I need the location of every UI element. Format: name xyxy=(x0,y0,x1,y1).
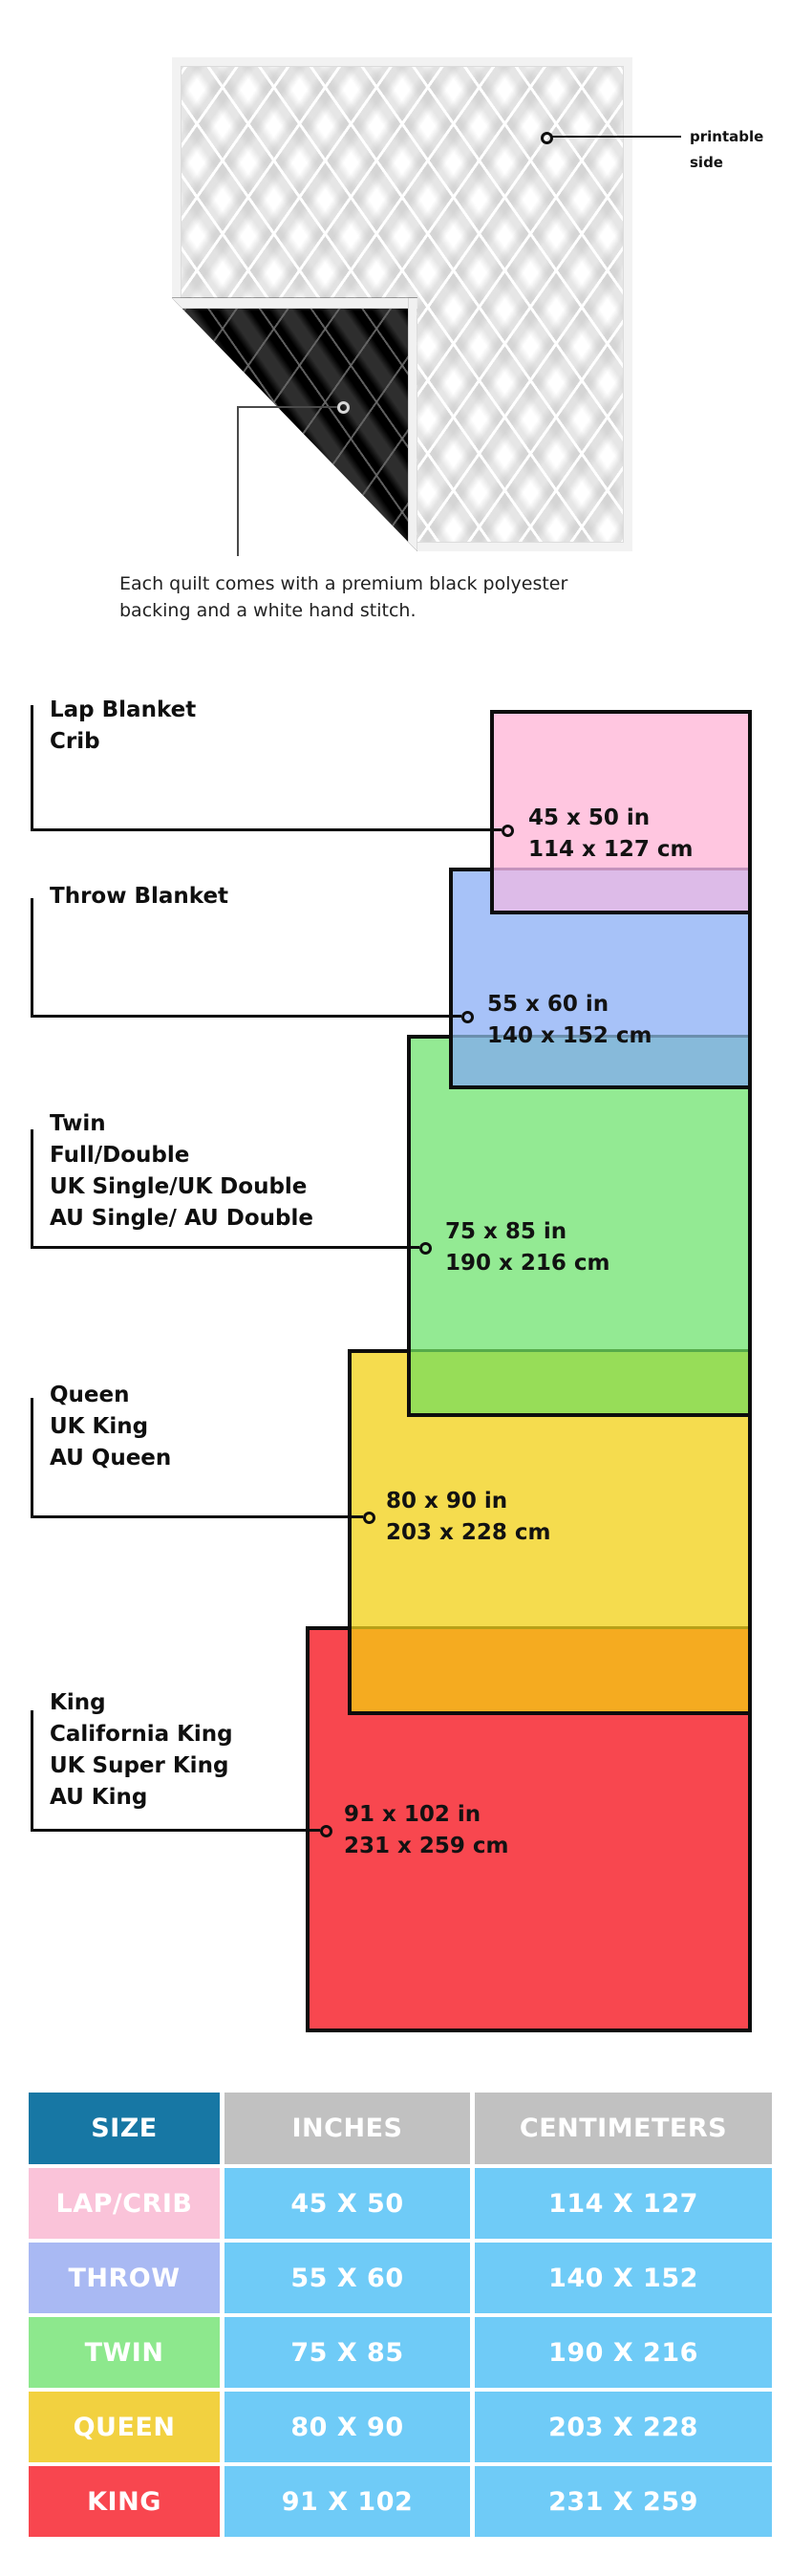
table-row-twin-cm: 190 X 216 xyxy=(475,2317,772,2388)
dim-twin-inches: 75 x 85 in xyxy=(445,1216,609,1248)
dim-throw-inches: 55 x 60 in xyxy=(487,989,652,1020)
overlap-queen-over-king xyxy=(352,1626,748,1711)
table-header-centimeters: CENTIMETERS xyxy=(475,2093,772,2164)
label-twin-line3: UK Single/UK Double xyxy=(50,1171,313,1203)
dim-text-lap: 45 x 50 in 114 x 127 cm xyxy=(528,803,693,866)
label-queen: Queen UK King AU Queen xyxy=(50,1380,171,1474)
bracket-king-vertical xyxy=(31,1710,33,1831)
printable-side-label-line2: side xyxy=(690,150,778,176)
table-row-lap-size: LAP/CRIB xyxy=(29,2168,220,2239)
dim-lap-inches: 45 x 50 in xyxy=(528,803,693,834)
quilt-size-infographic: printable side Each quilt comes with a p… xyxy=(0,0,791,2576)
overlap-twin-over-queen xyxy=(411,1349,748,1413)
table-row-throw-inches: 55 X 60 xyxy=(224,2243,470,2313)
callout-ring-throw xyxy=(461,1011,474,1023)
table-row-king-size: KING xyxy=(29,2466,220,2537)
dim-text-throw: 55 x 60 in 140 x 152 cm xyxy=(487,989,652,1052)
dim-text-twin: 75 x 85 in 190 x 216 cm xyxy=(445,1216,609,1279)
bracket-lap-horizontal xyxy=(31,828,502,831)
label-twin-line1: Twin xyxy=(50,1108,313,1140)
table-row-throw-cm: 140 X 152 xyxy=(475,2243,772,2313)
dim-king-cm: 231 x 259 cm xyxy=(344,1831,508,1862)
callout-ring-king xyxy=(320,1825,332,1837)
table-row-lap-inches: 45 X 50 xyxy=(224,2168,470,2239)
label-queen-line3: AU Queen xyxy=(50,1443,171,1474)
table-row-throw-size: THROW xyxy=(29,2243,220,2313)
label-king-line1: King xyxy=(50,1687,233,1719)
fold-trim-top xyxy=(172,298,417,309)
label-king-line4: AU King xyxy=(50,1782,233,1814)
bracket-lap-vertical xyxy=(31,705,33,831)
dim-lap-cm: 114 x 127 cm xyxy=(528,834,693,866)
callout-ring-queen xyxy=(363,1512,375,1524)
bracket-twin-horizontal xyxy=(31,1246,419,1249)
fold-trim-right xyxy=(408,298,418,551)
label-throw: Throw Blanket xyxy=(50,881,228,912)
dim-king-inches: 91 x 102 in xyxy=(344,1799,508,1831)
label-king-line3: UK Super King xyxy=(50,1750,233,1782)
table-row-king-cm: 231 X 259 xyxy=(475,2466,772,2537)
dim-throw-cm: 140 x 152 cm xyxy=(487,1020,652,1052)
printable-side-leader-line xyxy=(552,136,681,138)
overlap-lap-over-throw xyxy=(494,868,748,911)
dim-queen-cm: 203 x 228 cm xyxy=(386,1517,550,1549)
bracket-twin-vertical xyxy=(31,1129,33,1248)
printable-side-marker-icon xyxy=(541,132,553,144)
label-queen-line2: UK King xyxy=(50,1411,171,1443)
printable-side-label: printable side xyxy=(690,124,778,176)
table-row-twin-inches: 75 X 85 xyxy=(224,2317,470,2388)
backing-caption-line1: Each quilt comes with a premium black po… xyxy=(119,570,731,597)
label-twin: Twin Full/Double UK Single/UK Double AU … xyxy=(50,1108,313,1234)
backing-caption: Each quilt comes with a premium black po… xyxy=(119,570,731,624)
backing-leader-line-vertical xyxy=(237,406,239,556)
label-throw-line1: Throw Blanket xyxy=(50,881,228,912)
table-row-lap-cm: 114 X 127 xyxy=(475,2168,772,2239)
bracket-throw-vertical xyxy=(31,898,33,1017)
table-header-inches: INCHES xyxy=(224,2093,470,2164)
table-row-twin-size: TWIN xyxy=(29,2317,220,2388)
label-king: King California King UK Super King AU Ki… xyxy=(50,1687,233,1814)
dim-queen-inches: 80 x 90 in xyxy=(386,1486,550,1517)
label-lap-line1: Lap Blanket xyxy=(50,695,196,726)
callout-ring-lap xyxy=(502,825,514,837)
table-row-queen-inches: 80 X 90 xyxy=(224,2392,470,2462)
label-twin-line2: Full/Double xyxy=(50,1140,313,1171)
callout-ring-twin xyxy=(419,1242,432,1255)
backing-leader-line-horizontal xyxy=(237,406,337,408)
table-row-king-inches: 91 X 102 xyxy=(224,2466,470,2537)
label-lap-line2: Crib xyxy=(50,726,196,758)
bracket-throw-horizontal xyxy=(31,1015,461,1018)
backing-marker-icon xyxy=(337,401,350,414)
size-table: SIZE INCHES CENTIMETERS LAP/CRIB 45 X 50… xyxy=(29,2093,772,2537)
dim-text-queen: 80 x 90 in 203 x 228 cm xyxy=(386,1486,550,1549)
bracket-queen-horizontal xyxy=(31,1515,363,1518)
label-lap-crib: Lap Blanket Crib xyxy=(50,695,196,758)
dim-text-king: 91 x 102 in 231 x 259 cm xyxy=(344,1799,508,1862)
label-king-line2: California King xyxy=(50,1719,233,1750)
printable-side-label-line1: printable xyxy=(690,124,778,150)
bracket-queen-vertical xyxy=(31,1398,33,1517)
table-row-queen-cm: 203 X 228 xyxy=(475,2392,772,2462)
backing-caption-line2: backing and a white hand stitch. xyxy=(119,597,731,624)
label-queen-line1: Queen xyxy=(50,1380,171,1411)
table-header-size: SIZE xyxy=(29,2093,220,2164)
bracket-king-horizontal xyxy=(31,1829,320,1832)
table-row-queen-size: QUEEN xyxy=(29,2392,220,2462)
dim-twin-cm: 190 x 216 cm xyxy=(445,1248,609,1279)
label-twin-line4: AU Single/ AU Double xyxy=(50,1203,313,1234)
